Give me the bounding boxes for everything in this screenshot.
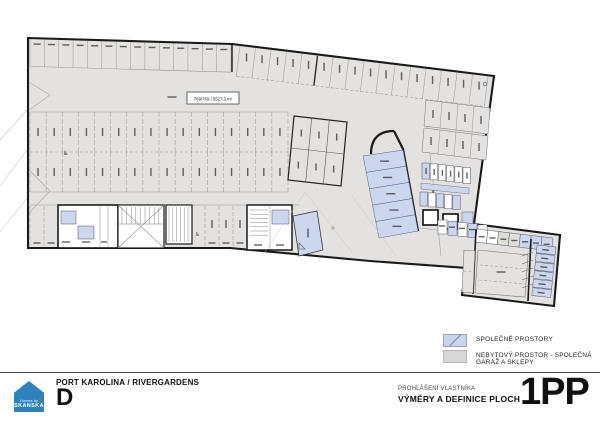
stall-label-mark [211,220,212,228]
stall-label-mark [209,242,216,243]
stall-label-mark [333,166,334,173]
legend-swatch-common [443,334,467,347]
stall-label-mark [263,168,264,176]
stall-label-mark [458,172,459,178]
stall-label-mark [150,168,151,176]
stall-label-mark [434,169,435,175]
stall-label-mark [489,237,495,238]
storage-cell [438,220,447,234]
stall-label-mark [392,226,401,227]
stall-label-mark [62,44,69,45]
stall-label-mark [279,168,280,176]
common-room [272,210,289,224]
stall-label-mark [70,128,71,136]
stall-label-mark [254,244,262,245]
stall-label-mark [48,44,55,45]
stall-label-mark [479,236,485,237]
storage-cell [453,196,460,210]
wheelchair-icon: ♿ [195,232,200,238]
storage-cell [448,221,457,235]
legend-label-garage: NEBYTOVÝ PROSTOR - SPOLEČNÁ GARÁŽ A SKLE… [476,350,595,367]
stall-label-mark [48,242,55,243]
storage-cell [436,194,443,208]
stall-label-mark [383,177,392,178]
sheet: { "colors": { "garage_fill": "#e3e2e0", … [0,0,600,424]
stall-label-mark [448,112,449,120]
stall-label-mark [432,76,433,84]
floor-label: 1PP [520,373,589,411]
storage-cell [420,192,427,206]
stall-label-mark [102,168,103,176]
stall-label-mark [308,61,309,69]
stall-label-mark [199,168,200,176]
stall-label-mark [463,80,464,88]
logo-text: SKANSKA [14,403,44,409]
stall-label-mark [37,168,38,176]
stall-label-mark [206,48,213,49]
stall-label-mark [166,168,167,176]
wheelchair-icon: ♿ [63,150,68,157]
stall-label-mark [497,271,506,272]
document-block: PROHLÁŠENÍ VLASTNÍKA VÝMĚRY A DEFINICE P… [398,386,520,404]
stall-label-mark [118,168,119,176]
stall-label-mark [215,128,216,136]
common-room [61,211,76,224]
stall-label-mark [62,241,70,242]
stall-label-mark [307,229,308,238]
area-label-text: 769/769 | 5527,3 m² [194,96,233,101]
stall-label-mark [182,128,183,136]
stall-label-mark [192,48,199,49]
stall-label-mark [439,225,445,226]
logo-subtext: Homes by [20,399,38,403]
elevator-shaft [423,210,438,225]
stall-label-mark [449,227,455,228]
stall-label-mark [386,193,395,194]
stall-label-mark [478,143,479,151]
stall-label-mark [425,168,426,174]
stall-label-mark [279,128,280,136]
stall-label-mark [370,68,371,76]
stall-label-mark [544,244,550,245]
stall-label-mark [339,65,340,73]
legend-label-common: SPOLEČNÉ PROSTORY [476,334,553,343]
stall-label-mark [478,82,479,90]
site-lines [0,110,27,232]
stall-label-mark [432,110,433,118]
stall-label-mark [380,160,389,161]
storage-cell [428,193,435,207]
stall-label-mark [446,139,447,147]
stall-label-mark [34,43,41,44]
stall-label-mark [53,168,54,176]
storage-cell [458,222,467,236]
stall-label-mark [120,46,127,47]
stall-label-mark [430,137,431,145]
stall-label-mark [231,168,232,176]
footer-divider [0,372,600,373]
legend-item-common: SPOLEČNÉ PROSTORY [443,334,595,347]
common-room [78,226,94,239]
center-stall-block [288,116,347,186]
stall-label-mark [442,170,443,176]
stall-label-mark [199,128,200,136]
stall-label-mark [450,171,451,177]
stall-label-mark [134,46,141,47]
stall-label-mark [246,53,247,61]
plan-line [0,150,27,186]
stall-label-mark [401,72,402,80]
legend: SPOLEČNÉ PROSTORY NEBYTOVÝ PROSTOR - SPO… [443,334,595,370]
stall-label-mark [298,162,299,169]
stall-label-mark [77,45,84,46]
stall-label-mark [301,130,302,137]
stall-label-mark [500,239,506,240]
legend-swatch-garage [443,350,467,363]
stall-label-mark [231,128,232,136]
stall-label-mark [323,63,324,71]
stall-label-mark [82,241,90,242]
stall-label-mark [118,128,119,136]
stall-label-mark [447,78,448,86]
project-title: PORT KAROLINA / RIVERGARDENS [56,378,199,387]
stall-label-mark [276,244,284,245]
plan-line [0,110,27,140]
stall-label-mark [292,59,293,67]
stall-label-mark [37,128,38,136]
stall-label-mark [105,45,112,46]
stall-label-mark [469,229,475,230]
stall-label-mark [220,49,227,50]
stall-label-mark [464,114,465,122]
garage-room [475,250,528,297]
storage-cell [445,195,452,209]
stall-label-mark [261,55,262,63]
stall-label-mark [53,128,54,136]
stall-label-mark [91,45,98,46]
document-title: VÝMĚRY A DEFINICE PLOCH [398,394,520,404]
stall-label-mark [247,168,248,176]
stall-label-mark [70,168,71,176]
document-type: PROHLÁŠENÍ VLASTNÍKA [398,386,520,392]
stall-label-mark [277,57,278,65]
stall-label-mark [480,116,481,124]
stall-label-mark [239,220,240,228]
stall-label-mark [86,128,87,136]
stall-label-mark [389,209,398,210]
stall-label-mark [134,128,135,136]
stall-label-mark [150,128,151,136]
stall-label-mark [354,67,355,75]
stall-label-mark [168,96,177,97]
stall-label-mark [462,141,463,149]
stall-label-mark [101,241,107,242]
stall-label-mark [102,128,103,136]
stall-label-mark [522,241,528,242]
stall-label-mark [385,70,386,78]
stall-label-mark [237,242,244,243]
stall-label-mark [533,242,539,243]
stall-label-mark [511,240,517,241]
legend-item-garage: NEBYTOVÝ PROSTOR - SPOLEČNÁ GARÁŽ A SKLE… [443,350,595,367]
stall-label-mark [134,168,135,176]
skanska-logo: Homes by SKANSKA [14,381,44,412]
stall-label-mark [225,220,226,228]
stall-label-mark [318,132,319,139]
stall-label-mark [315,164,316,171]
stall-label-mark [177,48,184,49]
stall-label-mark [182,168,183,176]
plan-line [0,198,27,232]
stall-label-mark [86,168,87,176]
building-letter: D [56,386,73,410]
stall-label-mark [149,47,156,48]
stall-label-mark [163,47,170,48]
stall-label-mark [166,128,167,136]
floor-plan: 769/769 | 5527,3 m²♿♿ [0,0,600,370]
stall-label-mark [416,74,417,82]
stall-label-mark [466,173,467,179]
stall-label-mark [247,128,248,136]
stall-label-mark [336,134,337,141]
stall-label-mark [215,168,216,176]
stall-label-mark [34,242,41,243]
stall-label-mark [263,128,264,136]
stall-label-mark [459,228,465,229]
stall-label-mark [223,242,230,243]
